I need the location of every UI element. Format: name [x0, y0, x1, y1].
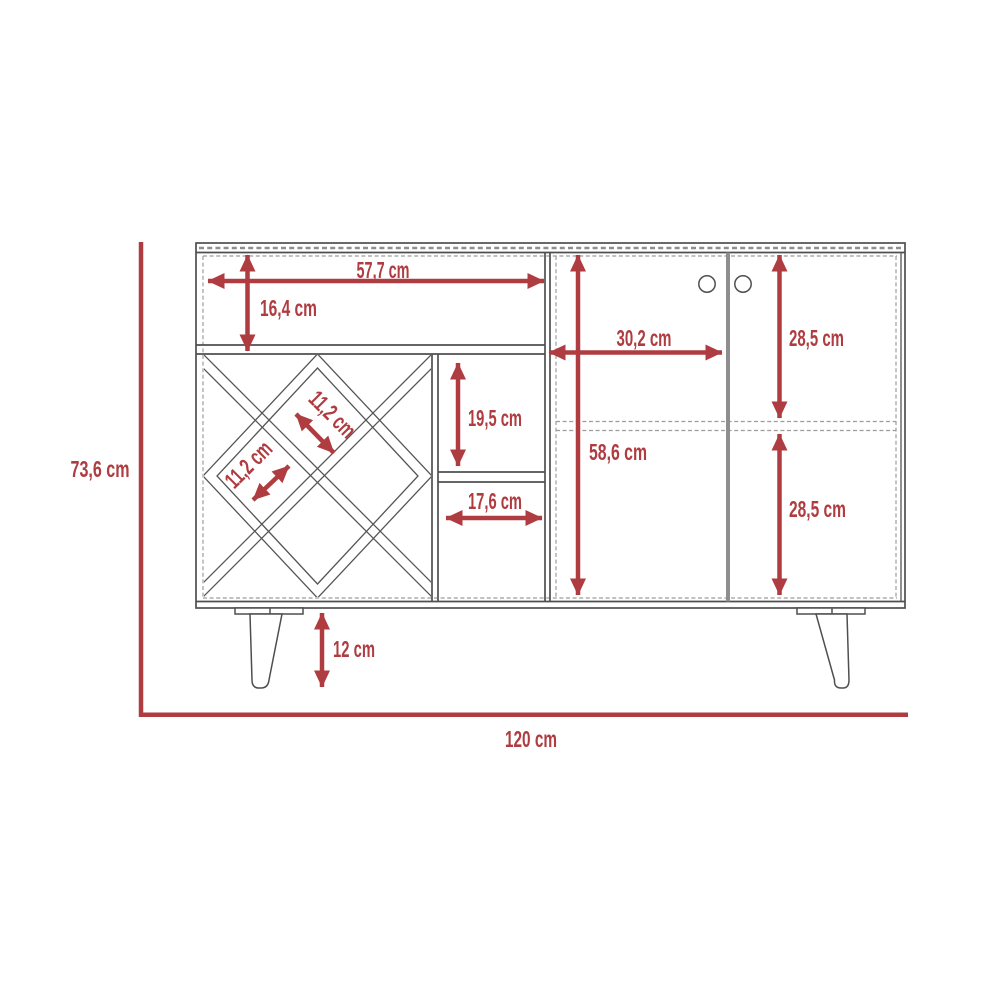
dim-shelf-width: 57,7 cm: [208, 257, 544, 283]
dim-door-width: 30,2 cm: [549, 325, 722, 353]
dim-door-top-height: 28,5 cm: [780, 255, 845, 418]
dim-label-wine-slot-upper: 11,2 cm: [304, 385, 362, 443]
dim-wine-slot-upper: 11,2 cm: [296, 385, 362, 453]
dim-cubby-height: 19,5 cm: [458, 363, 522, 466]
dim-label-cubby-height: 19,5 cm: [468, 405, 522, 431]
dim-door-bottom-height: 28,5 cm: [780, 434, 847, 595]
dim-shelf-height: 16,4 cm: [248, 255, 318, 351]
dim-label-interior-height: 58,6 cm: [589, 439, 647, 465]
dim-label-shelf-height: 16,4 cm: [260, 295, 317, 321]
dim-label-overall-width: 120 cm: [505, 726, 557, 752]
dim-label-door-top-height: 28,5 cm: [789, 325, 844, 351]
dim-label-shelf-width: 57,7 cm: [357, 257, 410, 283]
dim-label-overall-height: 73,6 cm: [71, 456, 130, 482]
dim-label-cubby-width: 17,6 cm: [468, 488, 522, 514]
dim-label-door-bottom-height: 28,5 cm: [789, 496, 846, 522]
right-leg: [816, 614, 849, 688]
legs: [235, 608, 865, 688]
dim-leg-height: 12 cm: [322, 613, 375, 687]
door-handle-left: [699, 276, 715, 292]
dim-cubby-width: 17,6 cm: [446, 488, 542, 518]
left-leg: [250, 614, 282, 688]
dim-label-leg-height: 12 cm: [333, 636, 375, 662]
left-leg-plate: [235, 608, 303, 614]
furniture-dimension-diagram: 73,6 cm 120 cm 57,7 cm 16,4 cm 19,5 cm 1…: [0, 0, 1000, 1000]
door-handle-right: [735, 276, 751, 292]
right-leg-plate: [797, 608, 865, 614]
dim-interior-height: 58,6 cm: [578, 255, 647, 595]
technical-drawing-canvas: 73,6 cm 120 cm 57,7 cm 16,4 cm 19,5 cm 1…: [0, 0, 1000, 1000]
dim-label-door-width: 30,2 cm: [617, 325, 672, 351]
